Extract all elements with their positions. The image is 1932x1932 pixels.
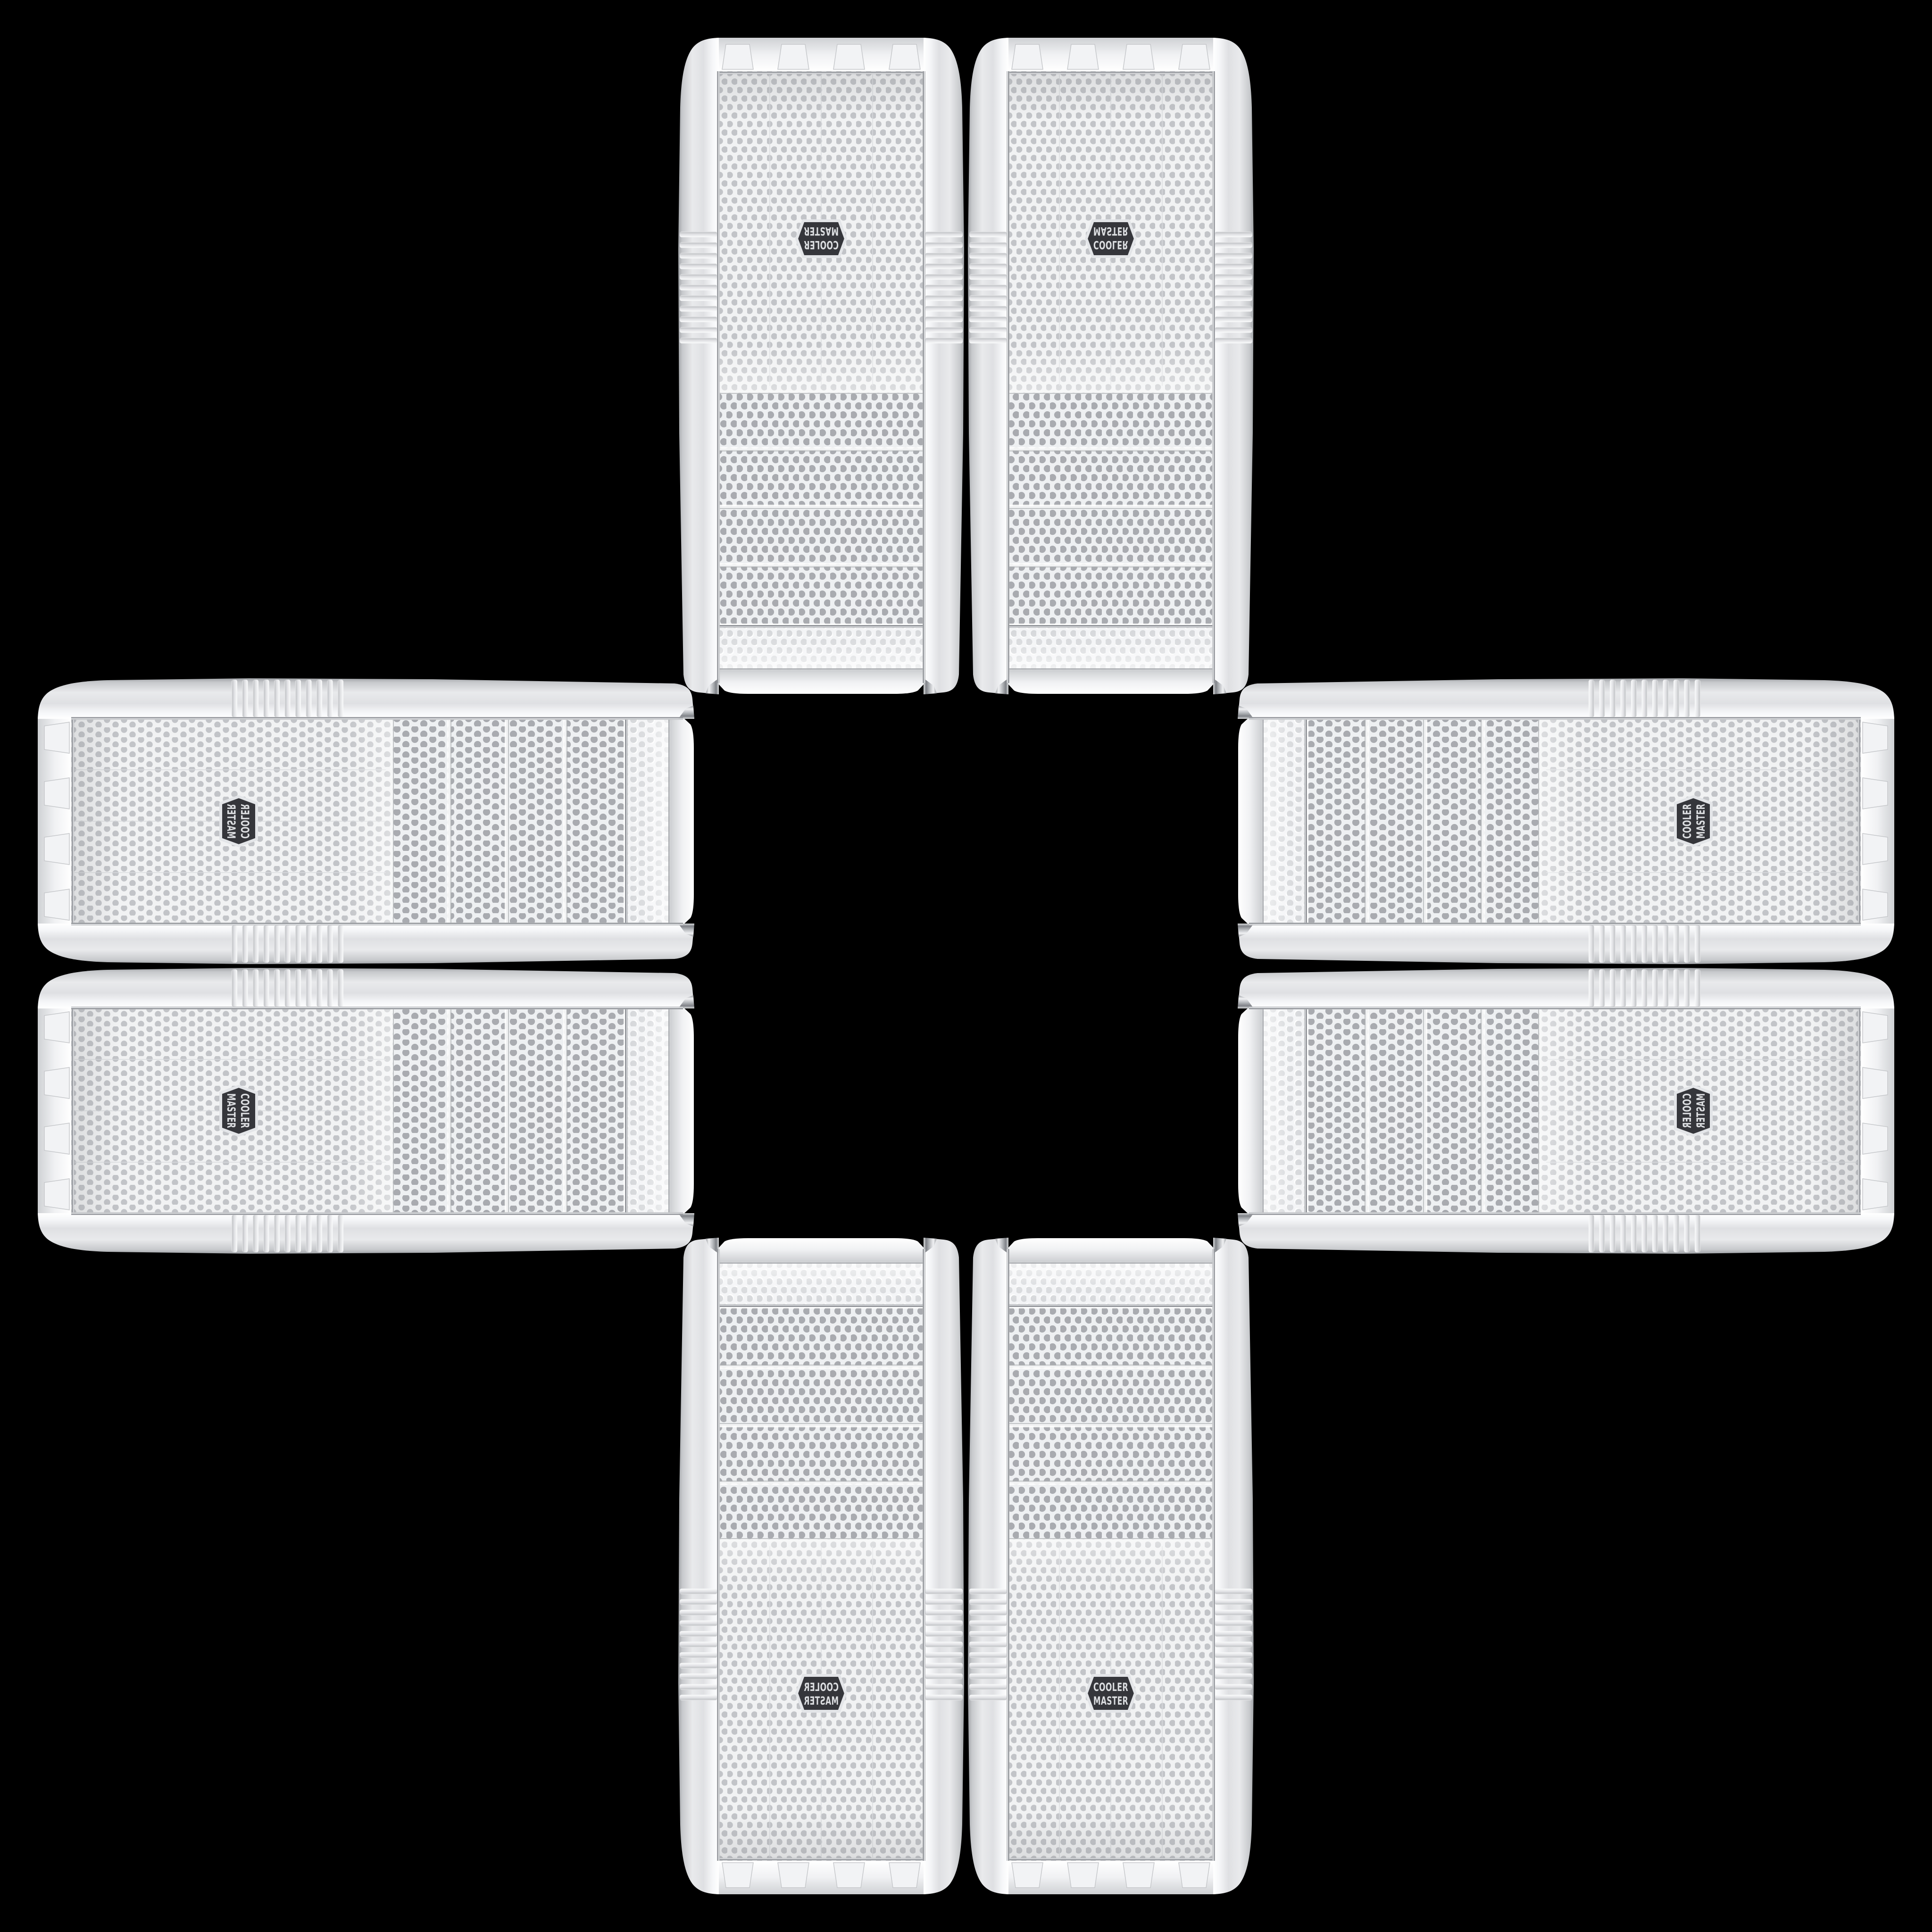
case-tower-bottom-left: [678, 1238, 964, 1894]
case-case-left-top: [38, 678, 694, 964]
case-tower-bottom-right: [968, 1238, 1254, 1894]
collage-stage: COOLER MASTER: [0, 0, 1932, 1932]
case-case-right-top: [1238, 678, 1894, 964]
product-collage-canvas: COOLER MASTER: [0, 0, 1932, 1932]
case-case-right-bottom: [1238, 968, 1894, 1254]
case-case-left-bottom: [38, 968, 694, 1254]
case-tower-top-left: [678, 38, 964, 694]
black-background: [0, 0, 1932, 1932]
case-tower-top-right: [968, 38, 1254, 694]
